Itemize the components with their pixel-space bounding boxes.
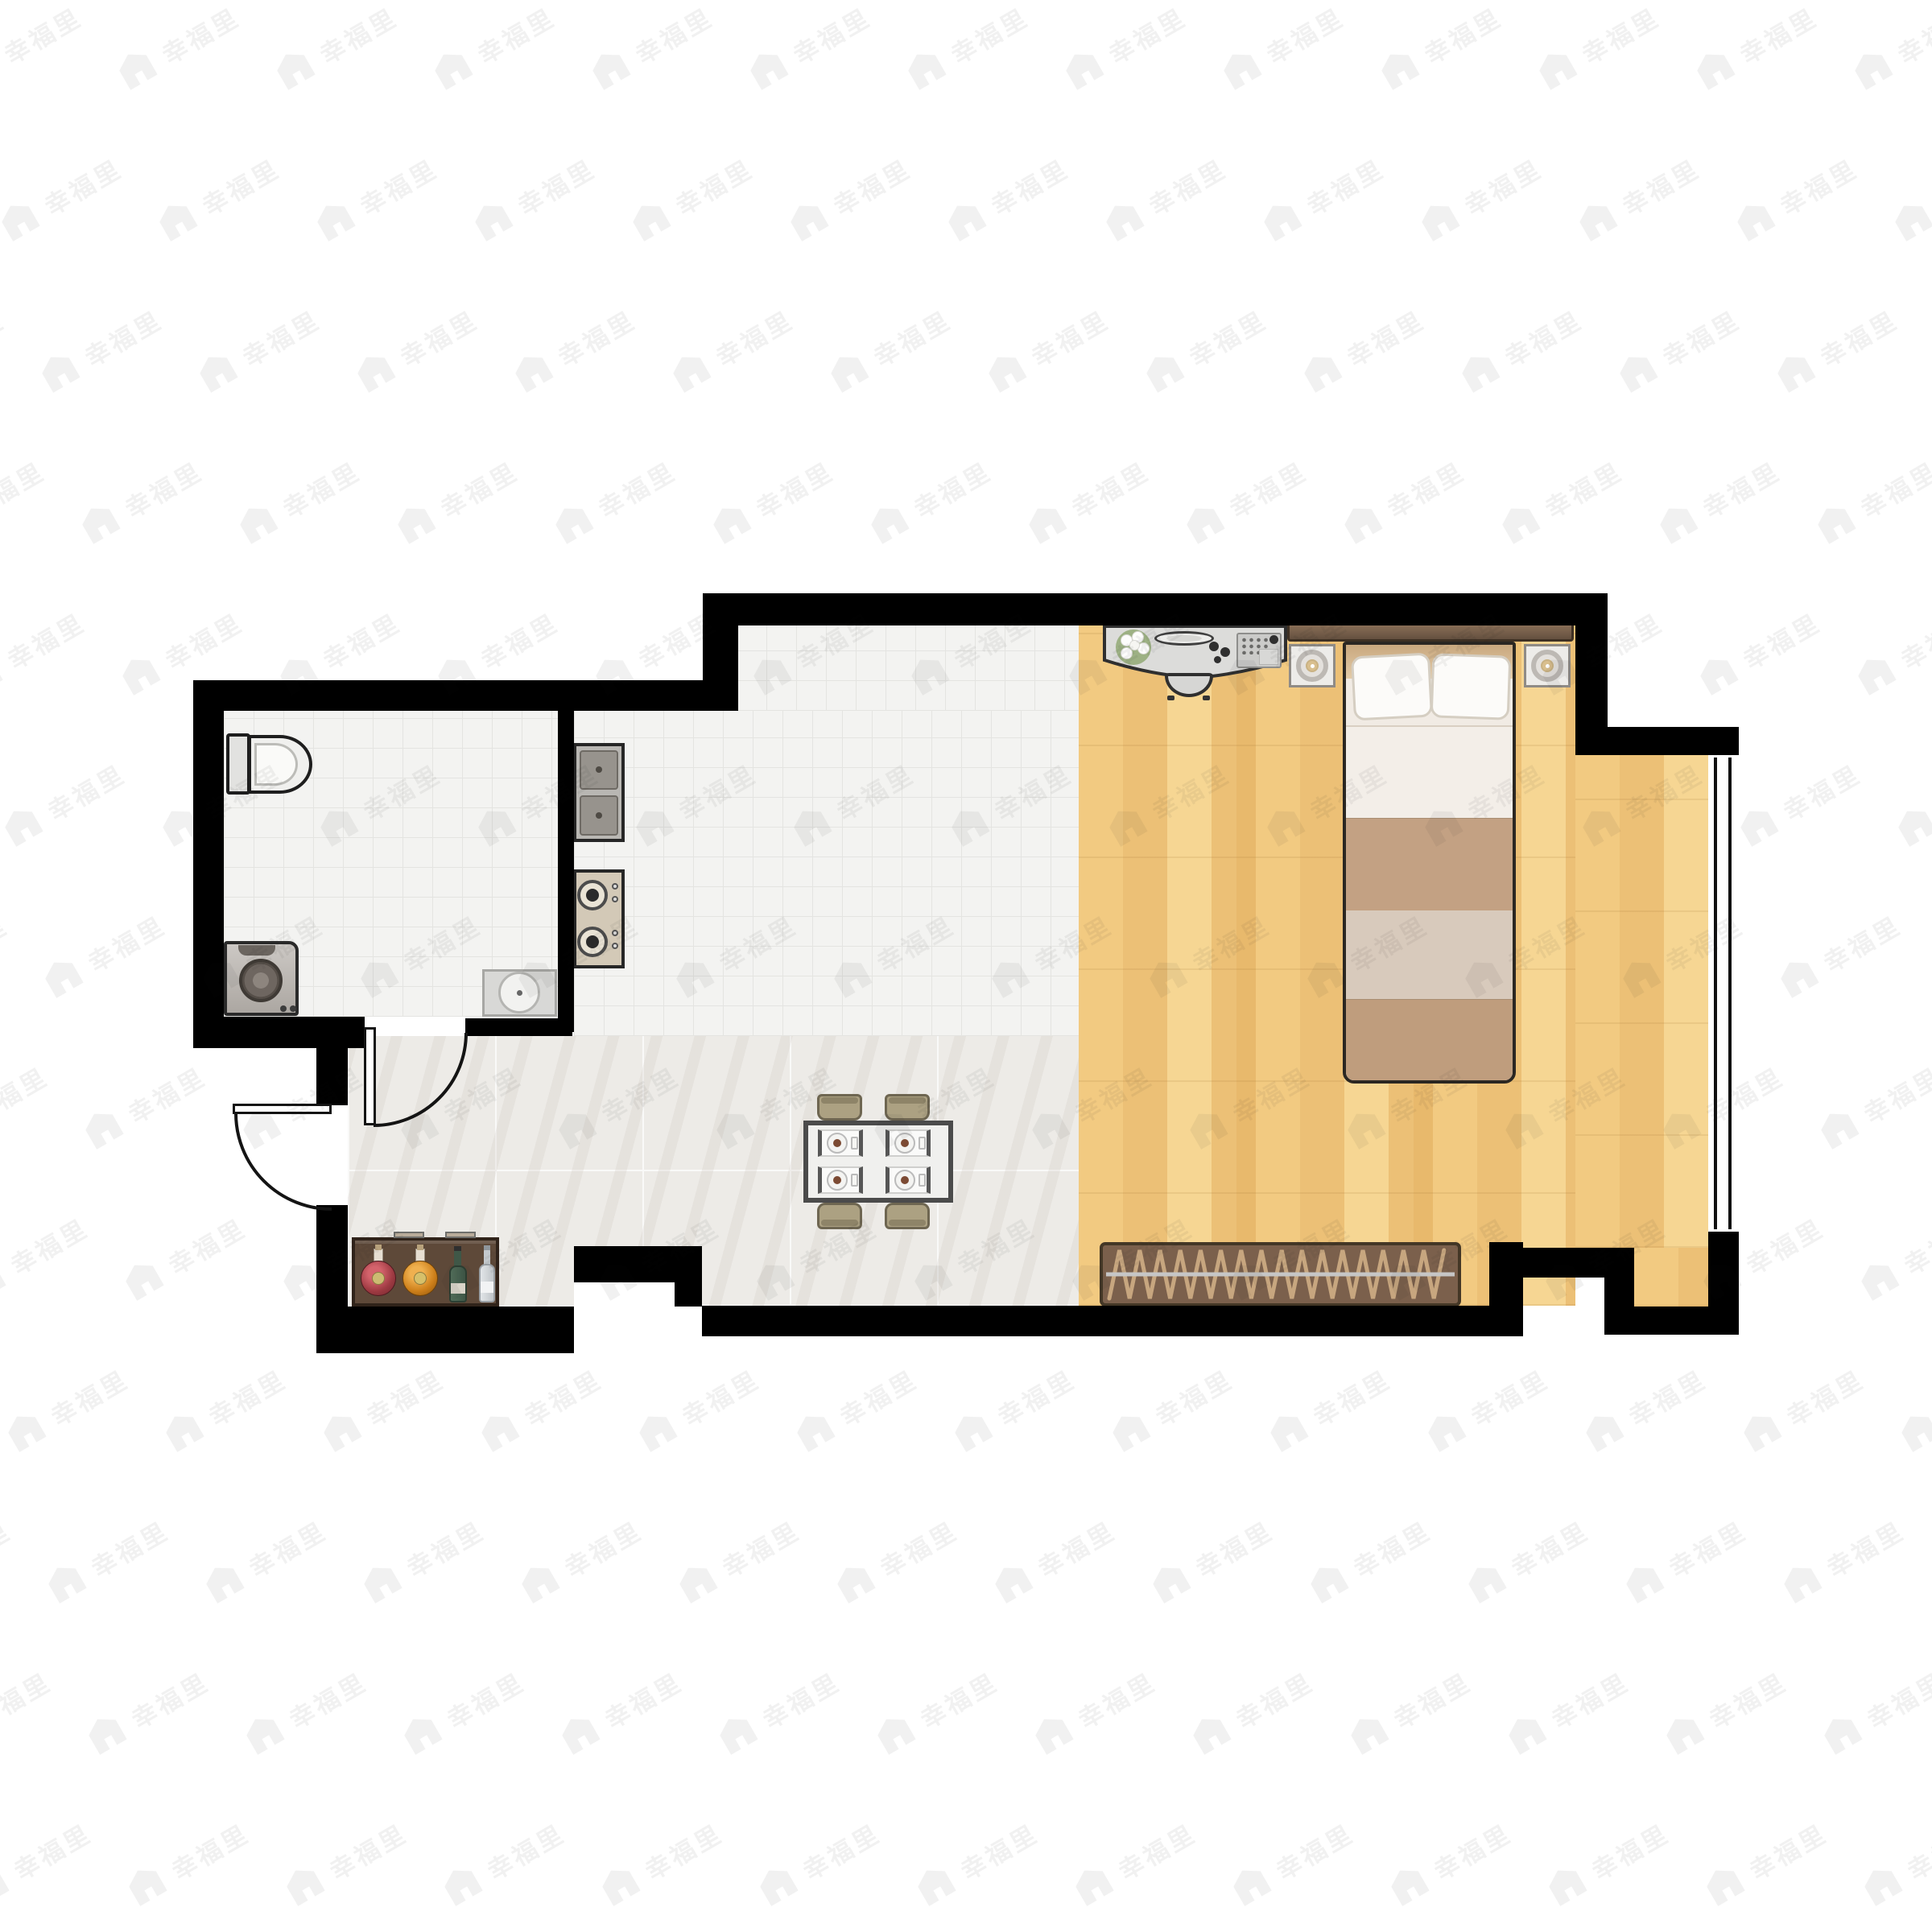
floorplan-canvas: 幸福里幸福里幸福里幸福里幸福里幸福里幸福里幸福里幸福里幸福里幸福里幸福里幸福里幸…	[0, 0, 1932, 1932]
door-swing-layer	[0, 0, 1932, 1932]
apartment-floorplan	[0, 0, 1932, 1932]
entry-door-arc	[236, 1113, 332, 1209]
bathroom-door-arc	[374, 1033, 466, 1125]
